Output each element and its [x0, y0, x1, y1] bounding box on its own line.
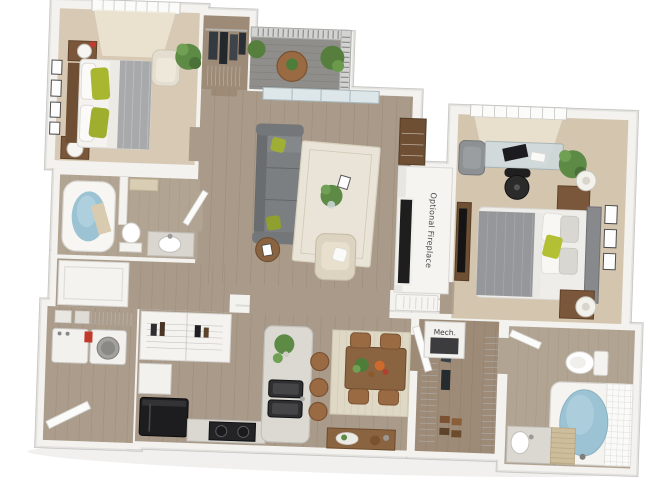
closet1-clothes-3 — [229, 34, 238, 60]
walkin-shoe-4 — [451, 430, 461, 437]
bed2-pillow-pattern-1 — [560, 216, 579, 243]
bedroom2-frame-3 — [603, 253, 616, 269]
bed1-pillow-green-1 — [90, 67, 110, 100]
wall-frame-3 — [50, 102, 61, 117]
island-sink-1-basin — [273, 383, 299, 395]
dining-chair-4 — [378, 390, 399, 406]
bedroom1-armchair-cushion — [155, 58, 176, 83]
opening-bedroom1-door — [189, 127, 204, 161]
fireplace-insert — [396, 198, 413, 284]
laundry-basket-1 — [55, 310, 71, 323]
sink-2 — [511, 431, 530, 454]
pantry-bottle-2 — [160, 322, 165, 336]
closet1-clothes-2 — [219, 32, 228, 64]
opening-walkin-bath2 — [497, 338, 512, 374]
laundry-basket-2 — [75, 311, 89, 323]
mech-closet-label: Mech. — [434, 328, 457, 338]
bedroom2-corner-chair-cushion — [463, 146, 482, 169]
detergent-bottle — [84, 331, 92, 342]
pantry-bottle-4 — [204, 327, 209, 337]
fridge-handle — [149, 404, 150, 432]
bed2-headboard — [584, 207, 601, 303]
bathroom1-nook-wall — [118, 176, 128, 224]
buffet-tray — [336, 432, 358, 445]
kitchen-lower-cabinet — [139, 363, 172, 394]
sofa-pillow-green-2 — [266, 215, 282, 231]
bath-mat-1 — [130, 179, 158, 191]
toilet-1-bowl — [122, 223, 141, 244]
stove-burner-2 — [238, 426, 249, 437]
floorplan-tilt-group: Optional Fireplace Mech. — [27, 0, 654, 480]
wall-frame-1 — [52, 60, 62, 74]
closet1-clothes-1 — [208, 31, 218, 59]
living-console — [399, 118, 427, 165]
walkin-shoe-1 — [440, 416, 450, 423]
mech-water-heater — [430, 337, 459, 354]
dining-chair-1 — [350, 333, 371, 349]
opening-living-kitchen — [249, 281, 390, 322]
pantry-bottle-3 — [195, 325, 201, 337]
side-table-frame — [262, 244, 273, 256]
toilet-1-tank — [119, 242, 141, 252]
pantry-bottle-1 — [151, 324, 157, 336]
walkin-clothes-2 — [441, 370, 451, 390]
stove-burner-1 — [216, 425, 227, 436]
wall-frame-2 — [51, 80, 62, 96]
floorplan-canvas: Optional Fireplace Mech. — [0, 0, 670, 480]
walkin-shoe-3 — [439, 428, 449, 435]
walkin-shoe-2 — [452, 418, 462, 425]
bed2-pillow-pattern-2 — [559, 248, 578, 275]
island-sink-2-basin — [272, 403, 298, 415]
bar-stool-3 — [309, 402, 328, 421]
bar-stool-2 — [310, 378, 329, 397]
bar-stool-1 — [310, 352, 329, 371]
bedroom2-frame-1 — [605, 205, 618, 223]
washer — [52, 328, 89, 363]
dining-chair-2 — [380, 334, 401, 350]
closet1-clothes-4 — [238, 33, 246, 55]
sofa-arm-top — [256, 123, 304, 137]
dining-chair-3 — [348, 389, 369, 405]
floorplan-stage: Optional Fireplace Mech. — [0, 0, 670, 480]
fireplace-bench — [396, 294, 439, 311]
bedroom2-frame-2 — [604, 229, 617, 247]
floorplan-shapes — [27, 0, 654, 480]
bed1-pillow-green-2 — [88, 107, 110, 139]
wall-frame-4 — [50, 122, 60, 134]
toilet-2-tank — [593, 351, 608, 375]
lamp-1a — [77, 44, 91, 58]
